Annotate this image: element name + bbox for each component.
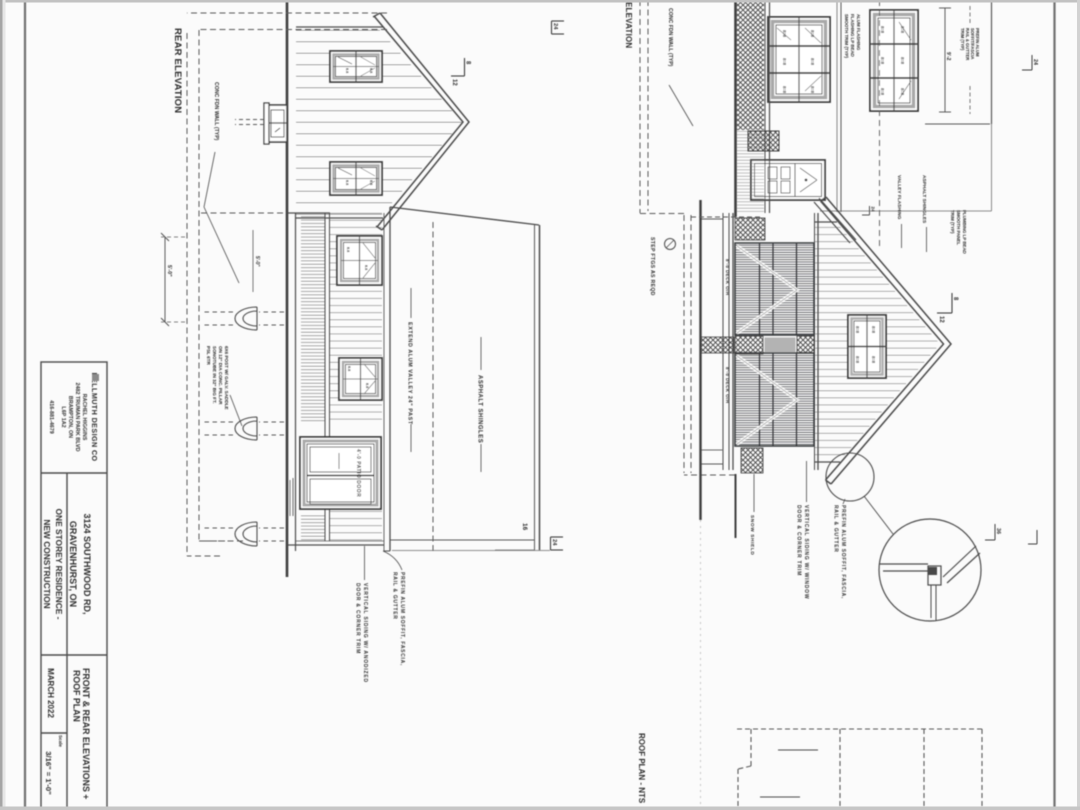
svg-text:HELLMUTH DESIGN CO: HELLMUTH DESIGN CO [90, 372, 99, 461]
svg-text:RAIL & GUTTER: RAIL & GUTTER [392, 572, 398, 620]
svg-text:TRIM (TYP): TRIM (TYP) [960, 28, 965, 51]
svg-text:ASPHALT SHINGLES: ASPHALT SHINGLES [477, 375, 483, 443]
svg-text:8.8: 8.8 [345, 180, 349, 185]
svg-text:8=8: 8=8 [880, 88, 885, 96]
svg-text:ROOF PLAN: ROOF PLAN [72, 670, 82, 722]
svg-text:ASPHALT SHINGLES: ASPHALT SHINGLES [921, 175, 927, 224]
svg-text:L6P 1A2: L6P 1A2 [60, 406, 66, 427]
svg-text:8'-0 DECK O/H: 8'-0 DECK O/H [725, 259, 730, 296]
svg-text:ON 12" DIA CONC. PILLAR: ON 12" DIA CONC. PILLAR [218, 346, 223, 405]
svg-text:VERTICAL SIDING W/ ANODIZED: VERTICAL SIDING W/ ANODIZED [362, 583, 368, 683]
svg-text:Scale: Scale [58, 735, 63, 747]
svg-text:GRAVENHURST, ON: GRAVENHURST, ON [68, 521, 78, 607]
svg-text:5'-0": 5'-0" [166, 265, 172, 277]
svg-text:SMOOTH TRIM (TYP): SMOOTH TRIM (TYP) [844, 14, 849, 58]
svg-text:8.8: 8.8 [364, 265, 368, 270]
svg-text:BRAMPTON, ON: BRAMPTON, ON [67, 396, 73, 438]
svg-text:TRIM (TYP): TRIM (TYP) [950, 210, 955, 234]
svg-text:FRONT & REAR ELEVATIONS +: FRONT & REAR ELEVATIONS + [81, 668, 91, 799]
svg-text:SNOW SHIELD: SNOW SHIELD [749, 515, 755, 555]
svg-text:MARCH 2022: MARCH 2022 [46, 668, 55, 718]
svg-text:STEP FTGS AS REQD: STEP FTGS AS REQD [649, 237, 655, 296]
svg-text:6X6 POST W/ GALV. SADDLE: 6X6 POST W/ GALV. SADDLE [224, 346, 229, 410]
svg-text:DOOR & CORNER TRIM: DOOR & CORNER TRIM [355, 583, 361, 654]
svg-text:ELEVATION: ELEVATION [624, 2, 633, 48]
svg-text:8=8: 8=8 [810, 86, 815, 94]
svg-text:8=8: 8=8 [900, 88, 905, 96]
svg-text:24: 24 [871, 207, 876, 213]
svg-text:VALLEY FLASHING: VALLEY FLASHING [896, 175, 902, 220]
svg-text:8=8: 8=8 [880, 57, 885, 65]
svg-text:12: 12 [938, 316, 944, 323]
svg-text:8=8: 8=8 [871, 326, 876, 334]
svg-text:8.8: 8.8 [346, 247, 350, 252]
svg-text:8=8: 8=8 [810, 30, 815, 38]
svg-text:8=8: 8=8 [900, 57, 905, 65]
svg-text:8.8: 8.8 [369, 180, 373, 185]
svg-text:ONE STOREY RESIDENCE -: ONE STOREY RESIDENCE - [54, 509, 64, 620]
svg-text:PSL 6TR: PSL 6TR [206, 346, 211, 365]
svg-text:8=8: 8=8 [782, 58, 787, 66]
svg-text:NEW CONSTRUCTION: NEW CONSTRUCTION [42, 519, 52, 608]
svg-text:2482 TRUMAN PARK BLVD: 2482 TRUMAN PARK BLVD [74, 383, 80, 452]
svg-text:8=8: 8=8 [900, 26, 905, 34]
svg-text:PREFIN ALUM SOFFIT, FASCIA,: PREFIN ALUM SOFFIT, FASCIA, [399, 572, 405, 666]
svg-text:24: 24 [1032, 59, 1038, 66]
svg-text:416-881-4679: 416-881-4679 [48, 400, 54, 434]
svg-text:RAIL & GUTTER: RAIL & GUTTER [833, 505, 839, 553]
svg-text:8.8: 8.8 [365, 383, 369, 388]
svg-text:8=8: 8=8 [855, 356, 860, 364]
svg-text:PREFIN ALUM SOFFIT, FASCIA,: PREFIN ALUM SOFFIT, FASCIA, [840, 505, 846, 599]
svg-text:8=8: 8=8 [782, 86, 787, 94]
svg-text:FLASHING LP BEAD: FLASHING LP BEAD [850, 14, 855, 57]
svg-text:ROOF PLAN - NTS: ROOF PLAN - NTS [637, 733, 646, 804]
svg-text:24: 24 [552, 23, 558, 30]
svg-text:9'-2: 9'-2 [945, 52, 951, 61]
svg-text:8'-0 DECK O/H: 8'-0 DECK O/H [725, 367, 730, 404]
svg-text:8=8: 8=8 [880, 26, 885, 34]
svg-text:36: 36 [995, 528, 1001, 534]
svg-text:8.8: 8.8 [345, 68, 349, 73]
svg-text:EXTEND ALUM VALLEY 24" PAST: EXTEND ALUM VALLEY 24" PAST [407, 322, 413, 425]
svg-text:ALUM FLASHING: ALUM FLASHING [856, 14, 861, 51]
svg-text:8=8: 8=8 [871, 356, 876, 364]
svg-text:RACHEL HIGGINS: RACHEL HIGGINS [81, 394, 87, 441]
svg-text:8.8: 8.8 [347, 366, 351, 371]
svg-text:3124 SOUTHWOOD RD,: 3124 SOUTHWOOD RD, [82, 513, 92, 614]
svg-text:REAR ELEVATION: REAR ELEVATION [172, 28, 183, 113]
svg-text:SONOTUBE IN 32" BIG FT.: SONOTUBE IN 32" BIG FT. [212, 346, 217, 404]
svg-text:PLUMBING LP BEAD: PLUMBING LP BEAD [962, 210, 967, 254]
svg-text:4'-0 PATIO DOOR: 4'-0 PATIO DOOR [355, 449, 361, 497]
svg-text:VERTICAL SIDING W/ WINDOW: VERTICAL SIDING W/ WINDOW [803, 505, 809, 599]
svg-text:CONC FDN WALL (TYP): CONC FDN WALL (TYP) [213, 82, 219, 141]
svg-text:5'-0": 5'-0" [254, 256, 260, 267]
svg-text:16: 16 [521, 523, 528, 531]
svg-text:DOOR & CORNER TRIM: DOOR & CORNER TRIM [796, 505, 802, 576]
svg-text:SMOOTH PANEL: SMOOTH PANEL [956, 210, 961, 245]
svg-text:8=8: 8=8 [782, 30, 787, 38]
svg-text:12: 12 [451, 79, 457, 86]
svg-text:8.8: 8.8 [369, 68, 373, 73]
svg-text:8=8: 8=8 [810, 58, 815, 66]
svg-text:CONC FDN WALL (TYP): CONC FDN WALL (TYP) [667, 8, 673, 67]
svg-text:24: 24 [551, 539, 557, 546]
svg-text:8=8: 8=8 [855, 326, 860, 334]
svg-text:3/16" = 1'-0": 3/16" = 1'-0" [44, 751, 53, 795]
